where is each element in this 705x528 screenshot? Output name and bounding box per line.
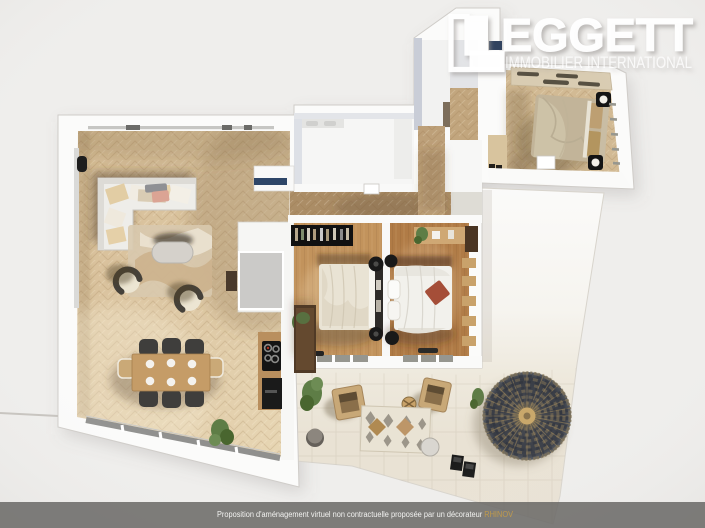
- svg-text:IMMOBILIER INTERNATIONAL: IMMOBILIER INTERNATIONAL: [505, 54, 692, 72]
- svg-text:Proposition d'aménagement virt: Proposition d'aménagement virtuel non co…: [217, 510, 514, 519]
